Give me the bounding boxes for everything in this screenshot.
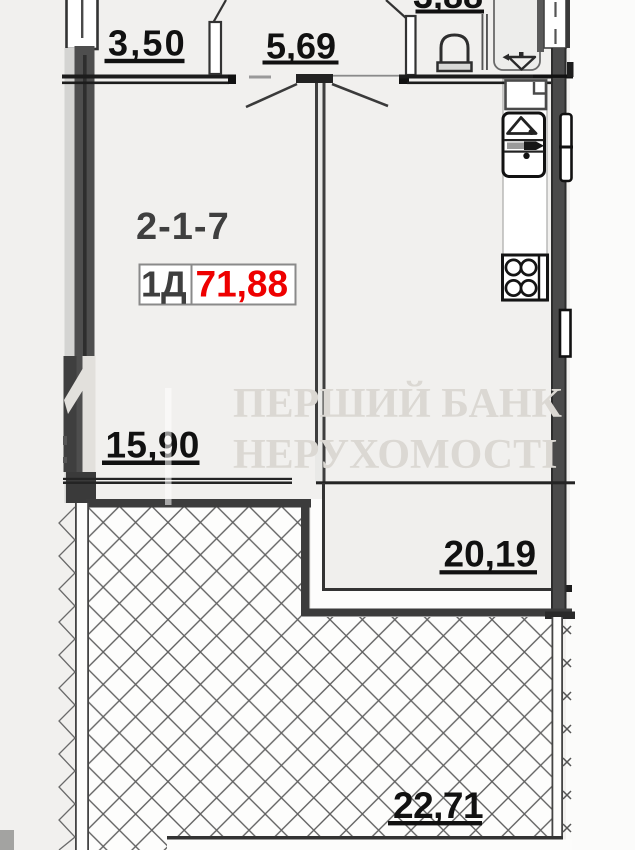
svg-text:5,69: 5,69	[266, 26, 336, 67]
svg-text:22,71: 22,71	[393, 785, 483, 826]
svg-text:ПЕРШИЙ БАНК: ПЕРШИЙ БАНК	[233, 381, 563, 427]
svg-text:15,90: 15,90	[106, 425, 200, 466]
svg-text:1Д: 1Д	[141, 264, 187, 305]
svg-text:20,19: 20,19	[444, 534, 537, 575]
svg-text:НЕРУХОМОСТІ: НЕРУХОМОСТІ	[233, 432, 558, 478]
svg-text:71,88: 71,88	[196, 264, 289, 305]
svg-text:3,50: 3,50	[108, 22, 187, 63]
svg-text:3,88: 3,88	[413, 0, 483, 16]
svg-text:2-1-7: 2-1-7	[136, 206, 230, 248]
